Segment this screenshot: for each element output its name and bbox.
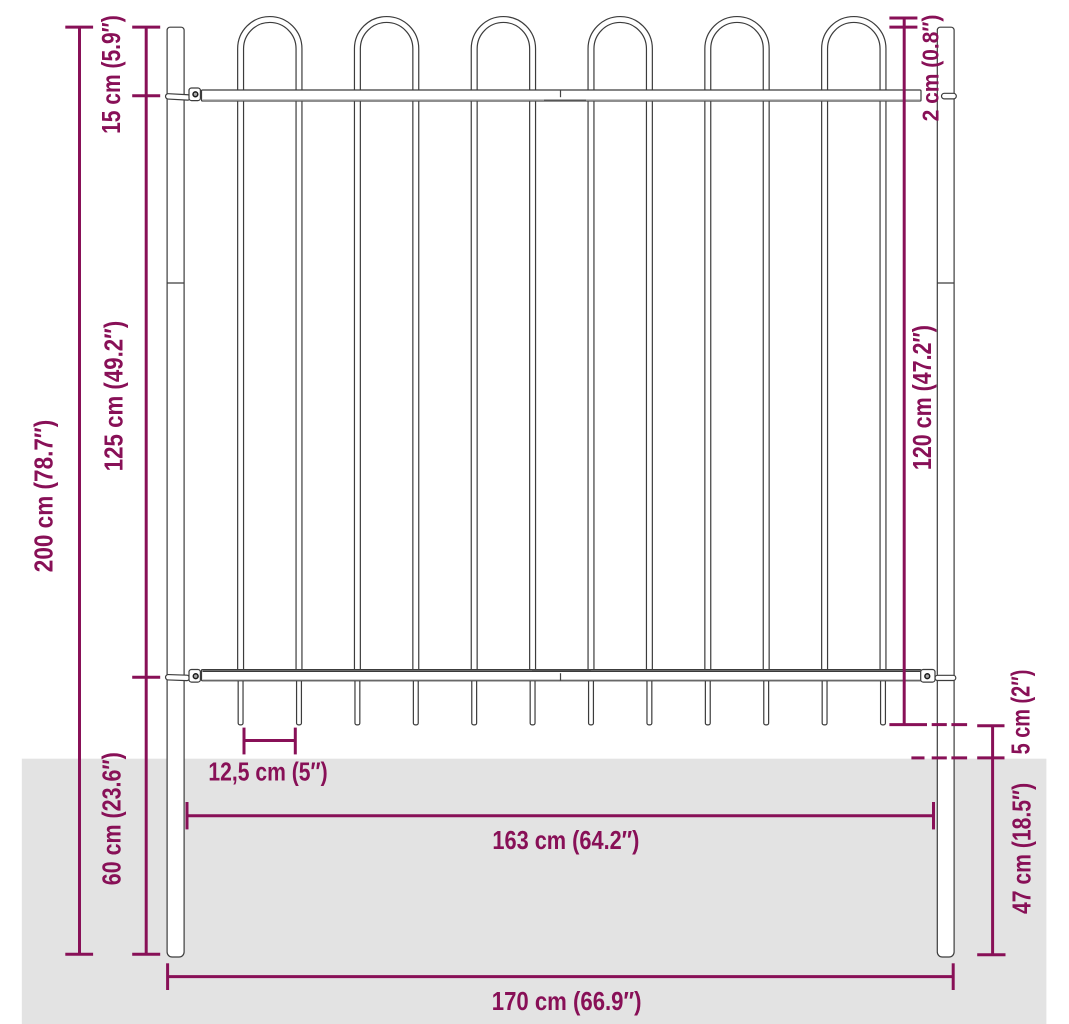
svg-text:170 cm (66.9″): 170 cm (66.9″) (492, 986, 642, 1016)
svg-text:125 cm (49.2″): 125 cm (49.2″) (98, 321, 128, 472)
svg-text:163 cm (64.2″): 163 cm (64.2″) (492, 825, 639, 855)
svg-text:2 cm (0.8″): 2 cm (0.8″) (918, 15, 944, 122)
svg-text:47 cm (18.5″): 47 cm (18.5″) (1007, 783, 1037, 914)
svg-text:12,5 cm (5″): 12,5 cm (5″) (208, 756, 327, 786)
svg-text:5 cm (2″): 5 cm (2″) (1006, 670, 1036, 755)
svg-text:120 cm (47.2″): 120 cm (47.2″) (907, 325, 937, 470)
svg-text:60 cm (23.6″): 60 cm (23.6″) (96, 752, 126, 885)
svg-text:15 cm (5.9″): 15 cm (5.9″) (96, 15, 126, 134)
svg-text:200 cm (78.7″): 200 cm (78.7″) (29, 420, 59, 572)
